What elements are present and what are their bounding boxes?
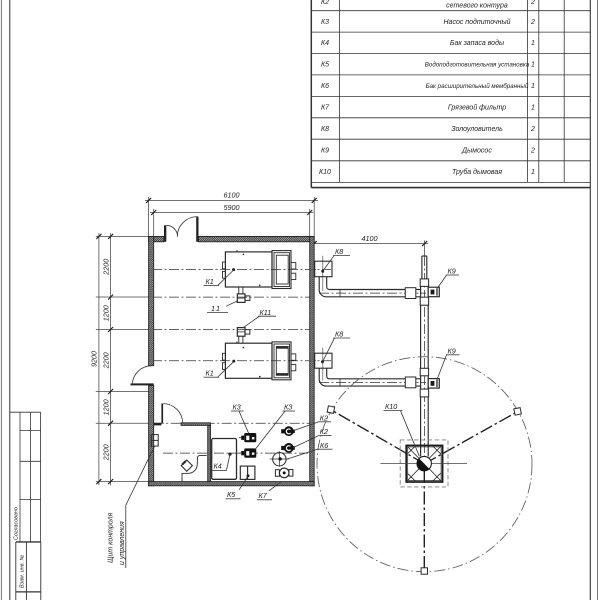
svg-text:К9: К9 (448, 267, 456, 276)
svg-text:К5: К5 (321, 62, 329, 69)
svg-text:К6: К6 (321, 83, 329, 90)
svg-text:К8: К8 (335, 247, 343, 256)
svg-text:Водоподготовительная установка: Водоподготовительная установка (425, 62, 530, 69)
svg-text:К4: К4 (321, 40, 329, 47)
svg-text:Золоуловитель: Золоуловитель (451, 126, 503, 133)
svg-text:Щит контроля: Щит контроля (107, 512, 114, 563)
svg-text:1: 1 (531, 169, 535, 176)
svg-text:1: 1 (531, 62, 535, 69)
svg-text:Взам. инв. №: Взам. инв. № (20, 554, 26, 588)
svg-text:Бак запаса воды: Бак запаса воды (450, 39, 505, 47)
svg-text:К11: К11 (260, 308, 272, 317)
svg-text:2200: 2200 (101, 259, 110, 276)
svg-text:1: 1 (531, 40, 535, 47)
svg-text:2: 2 (530, 147, 535, 154)
svg-text:5900: 5900 (224, 203, 240, 212)
svg-text:1200: 1200 (101, 305, 110, 321)
svg-text:6100: 6100 (224, 191, 240, 200)
svg-text:К5: К5 (227, 490, 236, 499)
svg-text:1: 1 (531, 83, 535, 90)
svg-text:К3: К3 (321, 19, 329, 26)
svg-text:2: 2 (530, 126, 535, 133)
svg-text:9200: 9200 (90, 351, 99, 367)
svg-text:Дымосос: Дымосос (461, 147, 492, 154)
svg-text:11: 11 (211, 304, 221, 313)
svg-text:К1: К1 (206, 369, 214, 378)
svg-text:2: 2 (530, 19, 535, 26)
svg-text:сетевого контура: сетевого контура (446, 2, 508, 9)
svg-text:К1: К1 (206, 277, 214, 286)
svg-text:Насос подпиточный: Насос подпиточный (444, 18, 511, 26)
svg-text:Труба дымовая: Труба дымовая (452, 168, 502, 176)
svg-text:К2: К2 (321, 0, 329, 6)
svg-text:К10: К10 (319, 169, 331, 176)
svg-text:К9: К9 (321, 147, 329, 154)
svg-text:К8: К8 (335, 330, 343, 339)
svg-text:2200: 2200 (101, 352, 110, 369)
svg-text:Согласовано: Согласовано (14, 507, 20, 540)
svg-text:К4: К4 (214, 461, 222, 470)
svg-text:К7: К7 (321, 105, 330, 112)
svg-text:К8: К8 (321, 126, 329, 133)
svg-text:К2: К2 (320, 427, 328, 436)
svg-text:Бак расширительный мембранный: Бак расширительный мембранный (426, 83, 529, 90)
svg-text:2200: 2200 (101, 444, 110, 461)
svg-text:К10: К10 (385, 402, 397, 411)
svg-text:2: 2 (530, 0, 535, 6)
svg-text:и управления: и управления (119, 521, 126, 565)
svg-text:4100: 4100 (362, 234, 378, 243)
svg-text:Грязевой фильтр: Грязевой фильтр (448, 104, 506, 112)
svg-text:К2: К2 (320, 413, 328, 422)
svg-text:К6: К6 (320, 441, 328, 450)
svg-text:К3: К3 (284, 403, 292, 412)
svg-text:К3: К3 (233, 403, 241, 412)
svg-text:1200: 1200 (101, 399, 110, 415)
svg-text:К7: К7 (259, 491, 268, 500)
svg-text:1: 1 (531, 105, 535, 112)
svg-text:К9: К9 (448, 346, 456, 355)
